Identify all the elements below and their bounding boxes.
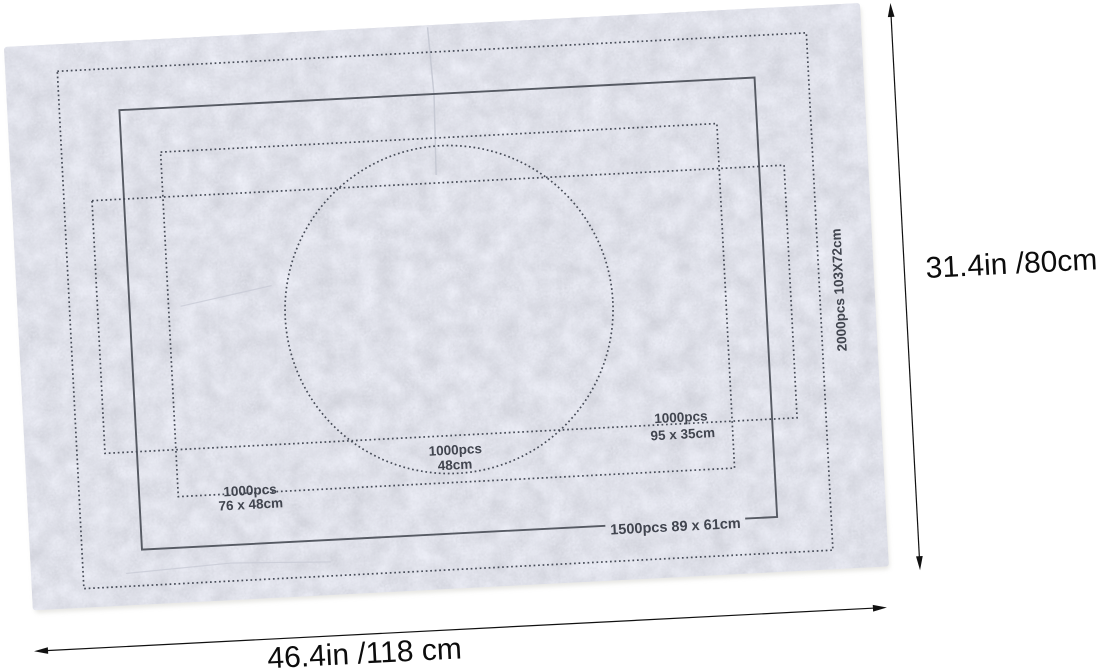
svg-text:1000pcs: 1000pcs	[428, 441, 482, 459]
svg-text:31.4in /80cm: 31.4in /80cm	[925, 243, 1098, 285]
svg-text:48cm: 48cm	[437, 457, 472, 474]
svg-text:1000pcs: 1000pcs	[654, 408, 708, 426]
